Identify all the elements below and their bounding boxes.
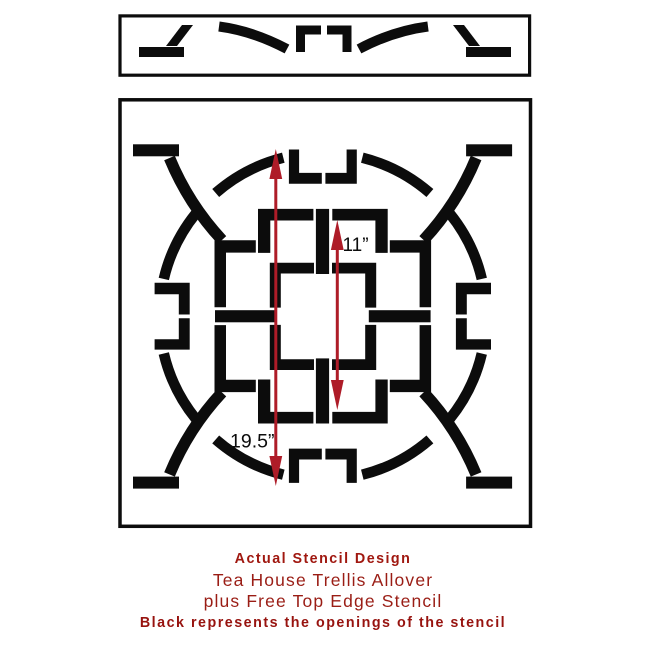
svg-text:19.5”: 19.5”	[230, 430, 274, 452]
svg-text:11”: 11”	[343, 235, 369, 256]
